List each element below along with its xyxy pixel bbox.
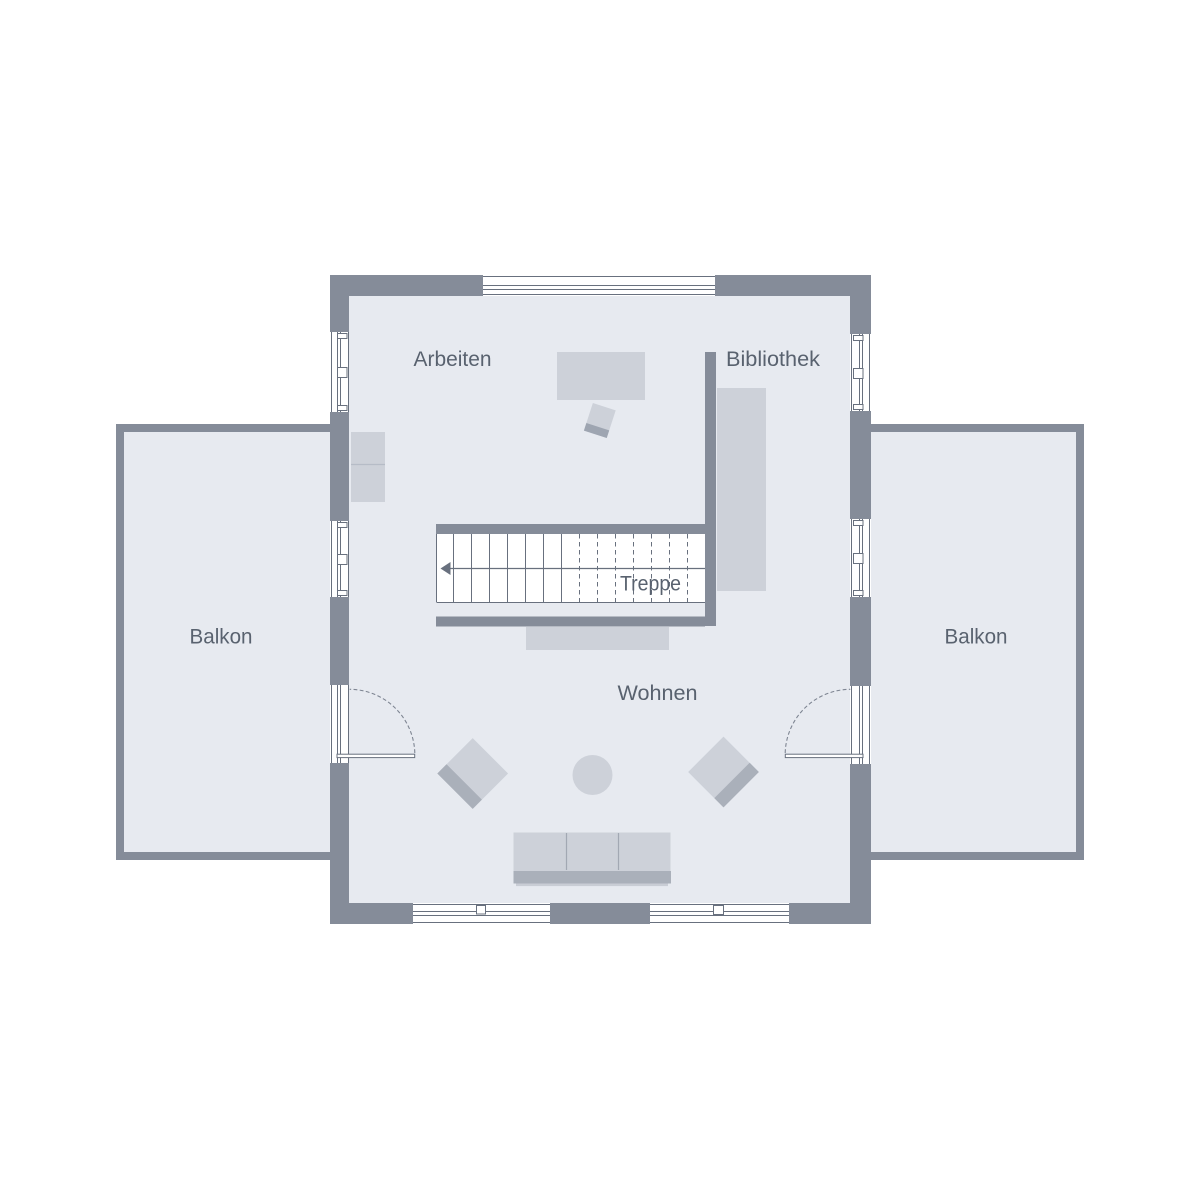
svg-text:Balkon: Balkon (190, 625, 253, 649)
svg-text:Wohnen: Wohnen (618, 681, 698, 705)
svg-text:Arbeiten: Arbeiten (414, 347, 492, 371)
svg-text:Bibliothek: Bibliothek (726, 347, 820, 371)
svg-text:Treppe: Treppe (620, 572, 681, 596)
svg-text:Balkon: Balkon (945, 625, 1008, 649)
